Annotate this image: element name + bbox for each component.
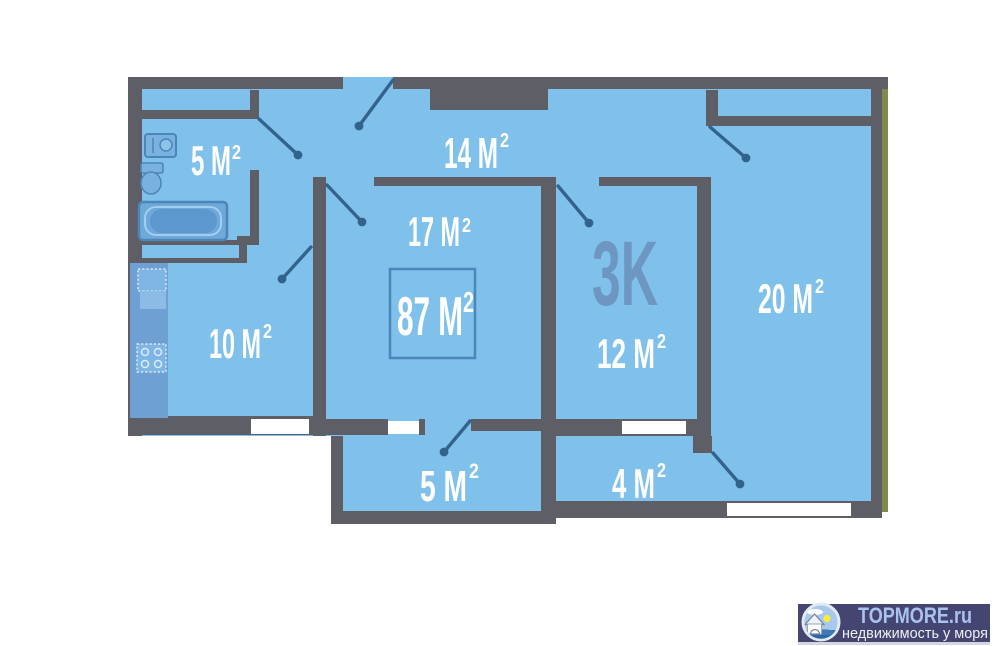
svg-text:14 M: 14 M [444,129,498,178]
svg-text:3K: 3K [592,223,658,325]
svg-text:17 M: 17 M [408,208,460,255]
svg-text:2: 2 [263,321,272,343]
svg-text:недвижимость у моря: недвижимость у моря [842,625,988,642]
svg-text:87 M: 87 M [397,285,463,347]
svg-text:2: 2 [232,142,241,164]
svg-text:2: 2 [469,460,479,483]
svg-text:5 M: 5 M [420,462,467,511]
svg-text:4 M: 4 M [612,460,655,507]
svg-text:10 M: 10 M [209,320,261,367]
svg-text:2: 2 [657,331,666,353]
svg-text:20 M: 20 M [758,275,813,322]
svg-text:12 M: 12 M [597,330,655,377]
svg-text:2: 2 [815,276,824,298]
svg-text:2: 2 [657,460,666,482]
svg-text:2: 2 [463,287,474,319]
svg-text:5 M: 5 M [191,137,231,184]
svg-text:2: 2 [500,130,509,152]
svg-text:2: 2 [462,215,471,237]
